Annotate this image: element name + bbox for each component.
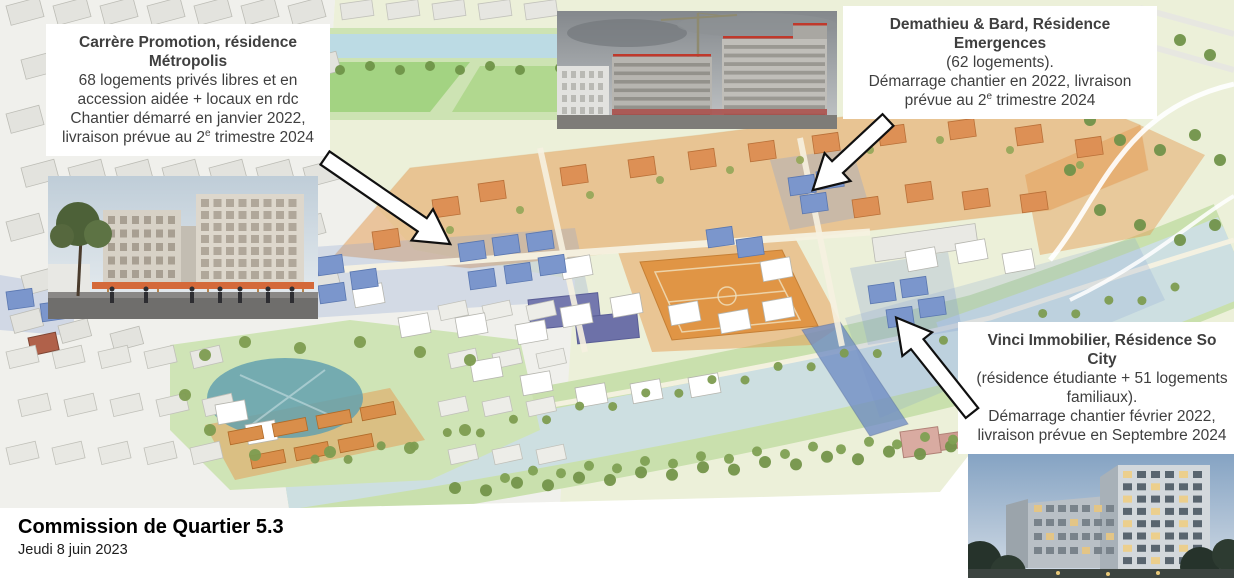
callout-carrere-metropolis: Carrère Promotion, résidence Métropolis …	[46, 24, 330, 156]
callout-text-line: familiaux).	[962, 388, 1234, 407]
metropolis-render-photo	[48, 176, 318, 319]
callout-text-line: accession aidée + locaux en rdc	[50, 90, 326, 109]
callout-text-line: 68 logements privés libres et en	[50, 71, 326, 90]
so-city-photo-illustration	[968, 443, 1234, 578]
callout-title-line: Demathieu & Bard, Résidence	[847, 15, 1153, 34]
metropolis-photo-illustration	[48, 176, 318, 319]
callout-text-line: livraison prévue en Septembre 2024	[962, 426, 1234, 445]
callout-text-line: (62 logements).	[847, 53, 1153, 72]
callout-title-line: City	[962, 350, 1234, 369]
callout-text-line: (résidence étudiante + 51 logements	[962, 369, 1234, 388]
callout-text-line: Démarrage chantier en 2022, livraison	[847, 72, 1153, 91]
slide-footer: Commission de Quartier 5.3 Jeudi 8 juin …	[18, 516, 284, 558]
so-city-render-photo	[968, 443, 1234, 578]
callout-title-line: Métropolis	[50, 52, 326, 71]
callout-vinci-so-city: Vinci Immobilier, Résidence So City (rés…	[958, 322, 1234, 454]
callout-text-line: livraison prévue au 2e trimestre 2024	[50, 128, 326, 147]
callout-title-line: Emergences	[847, 34, 1153, 53]
slide-title: Commission de Quartier 5.3	[18, 516, 284, 539]
callout-title-line: Carrère Promotion, résidence	[50, 33, 326, 52]
slide: Carrère Promotion, résidence Métropolis …	[0, 0, 1234, 578]
callout-demathieu-emergences: Demathieu & Bard, Résidence Emergences (…	[843, 6, 1157, 119]
callout-text-line: prévue au 2e trimestre 2024	[847, 91, 1153, 110]
callout-text-line: Démarrage chantier février 2022,	[962, 407, 1234, 426]
callout-title-line: Vinci Immobilier, Résidence So	[962, 331, 1234, 350]
slide-date: Jeudi 8 juin 2023	[18, 542, 284, 558]
construction-site-photo	[557, 11, 837, 129]
callout-text-line: Chantier démarré en janvier 2022,	[50, 109, 326, 128]
construction-photo-illustration	[557, 11, 837, 129]
